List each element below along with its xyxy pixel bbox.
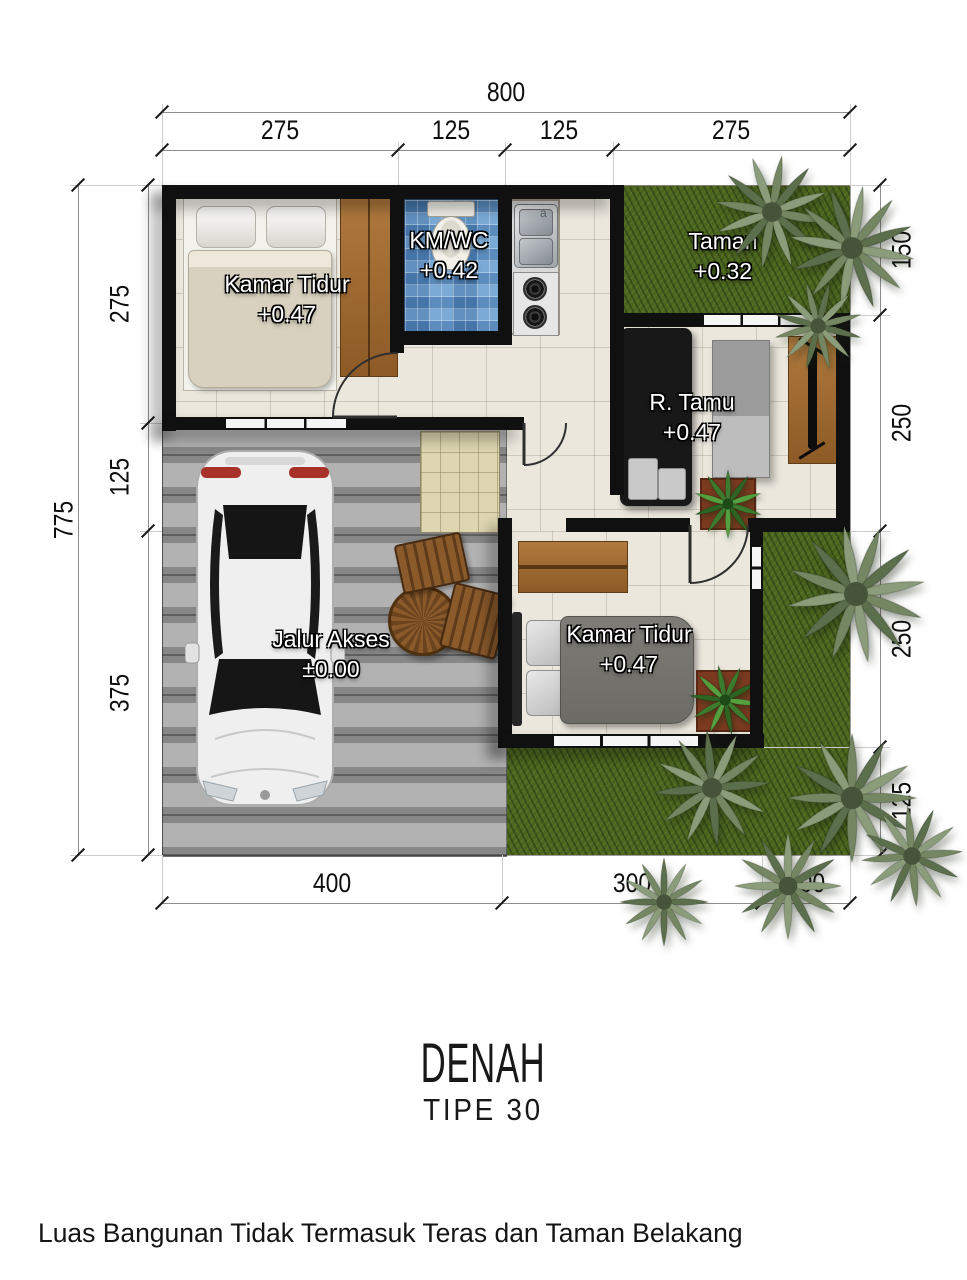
front-door-arc xyxy=(524,423,566,465)
room-label-bathroom: KM/WC +0.42 xyxy=(409,226,488,286)
dim-label-top-total: 800 xyxy=(487,77,525,108)
dim-label: 375 xyxy=(105,674,136,712)
dim-label: 250 xyxy=(887,404,918,442)
dim-ext-line xyxy=(140,531,162,532)
palm-tree xyxy=(781,519,931,669)
palm-tree xyxy=(857,801,967,911)
room-label-bedroom1: Kamar Tidur +0.47 xyxy=(224,270,349,330)
dim-label: 275 xyxy=(105,285,136,323)
dim-ext-line xyxy=(140,423,162,424)
dim-ext-line xyxy=(162,104,163,185)
dim-label: 275 xyxy=(261,115,299,146)
room-name: KM/WC xyxy=(409,226,488,256)
bedroom1-door-arc xyxy=(333,353,397,417)
dim-line xyxy=(162,112,850,113)
page-title: DENAH xyxy=(421,1030,546,1095)
dim-label-left-total: 775 xyxy=(49,501,80,539)
floor-plan-page: a xyxy=(0,0,967,1280)
room-level: +0.47 xyxy=(649,418,734,448)
room-name: R. Tamu xyxy=(649,388,734,418)
dim-ext-line xyxy=(162,855,163,903)
bedroom2-door-arc xyxy=(690,525,748,583)
dim-label: 275 xyxy=(712,115,750,146)
page-subtitle: TIPE 30 xyxy=(423,1092,543,1128)
footer-note: Luas Bangunan Tidak Termasuk Teras dan T… xyxy=(38,1218,743,1249)
dim-label: 125 xyxy=(540,115,578,146)
dim-ext-line xyxy=(502,855,503,903)
room-level: +0.47 xyxy=(224,300,349,330)
room-label-driveway: Jalur Akses ±0.00 xyxy=(272,625,390,685)
room-label-living: R. Tamu +0.47 xyxy=(649,388,734,448)
palm-tree xyxy=(616,854,712,950)
dim-line xyxy=(148,185,149,855)
palm-tree xyxy=(730,828,846,944)
room-name: Kamar Tidur xyxy=(224,270,349,300)
room-name: Jalur Akses xyxy=(272,625,390,655)
dim-label: 400 xyxy=(313,868,351,899)
room-name: Kamar Tidur xyxy=(566,620,691,650)
room-level: ±0.00 xyxy=(272,655,390,685)
palm-tree xyxy=(770,278,866,374)
room-label-bedroom2: Kamar Tidur +0.47 xyxy=(566,620,691,680)
room-level: +0.42 xyxy=(409,256,488,286)
room-level: +0.47 xyxy=(566,650,691,680)
dim-label: 125 xyxy=(432,115,470,146)
dim-ext-line xyxy=(850,104,851,185)
dim-label: 125 xyxy=(105,458,136,496)
